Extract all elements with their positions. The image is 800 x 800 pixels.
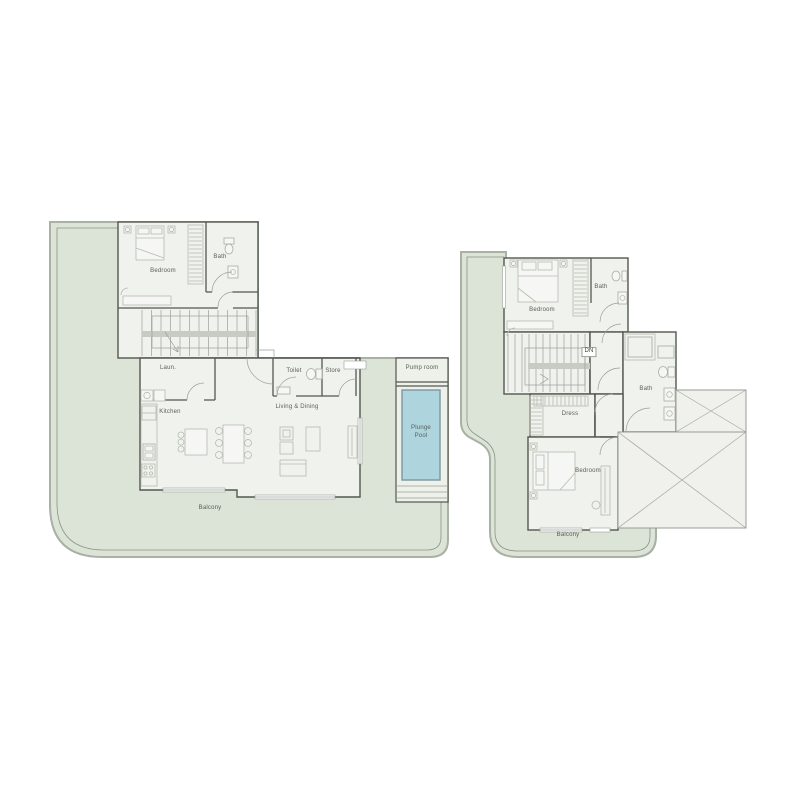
label-store: Store	[325, 368, 340, 376]
label-toilet: Toilet	[286, 368, 301, 376]
sink	[664, 388, 675, 401]
dining-table	[223, 425, 244, 463]
left-plan	[50, 222, 448, 557]
sink	[664, 407, 675, 420]
toilet	[668, 367, 675, 377]
label-balcony-left: Balcony	[199, 505, 222, 513]
label-bath-upper-right: Bath	[594, 284, 607, 292]
label-laundry: Laun.	[160, 365, 176, 373]
label-stairs-dn: DN	[581, 347, 596, 357]
label-bedroom-left: Bedroom	[150, 268, 176, 276]
bench	[123, 296, 171, 305]
bed	[136, 226, 164, 260]
toilet	[622, 271, 627, 281]
toilet	[224, 238, 234, 244]
toilet	[316, 369, 322, 379]
label-plunge-pool: Plunge Pool	[411, 425, 431, 441]
label-bath-left: Bath	[213, 254, 226, 262]
label-dress: Dress	[562, 411, 579, 419]
label-bedroom-upper-right: Bedroom	[529, 307, 555, 315]
left-living-block	[140, 358, 360, 497]
label-balcony-right: Balcony	[557, 532, 580, 540]
right-landing	[590, 332, 623, 394]
floorplan-canvas: Bedroom Bath Laun. Toilet Store Kitchen …	[0, 0, 800, 800]
kitchen-island	[185, 429, 207, 455]
right-plan	[461, 252, 746, 557]
label-bath-right: Bath	[639, 386, 652, 394]
label-bedroom-lower-right: Bedroom	[575, 468, 601, 476]
right-stairs-landing-strip	[528, 363, 590, 369]
sink	[618, 292, 627, 304]
left-stairs-landing-strip	[142, 331, 256, 337]
floorplan-drawing	[0, 0, 800, 800]
label-kitchen: Kitchen	[159, 409, 180, 417]
label-pump-room: Pump room	[406, 365, 439, 373]
label-living-dining: Living & Dining	[275, 404, 318, 412]
washer	[141, 390, 153, 401]
